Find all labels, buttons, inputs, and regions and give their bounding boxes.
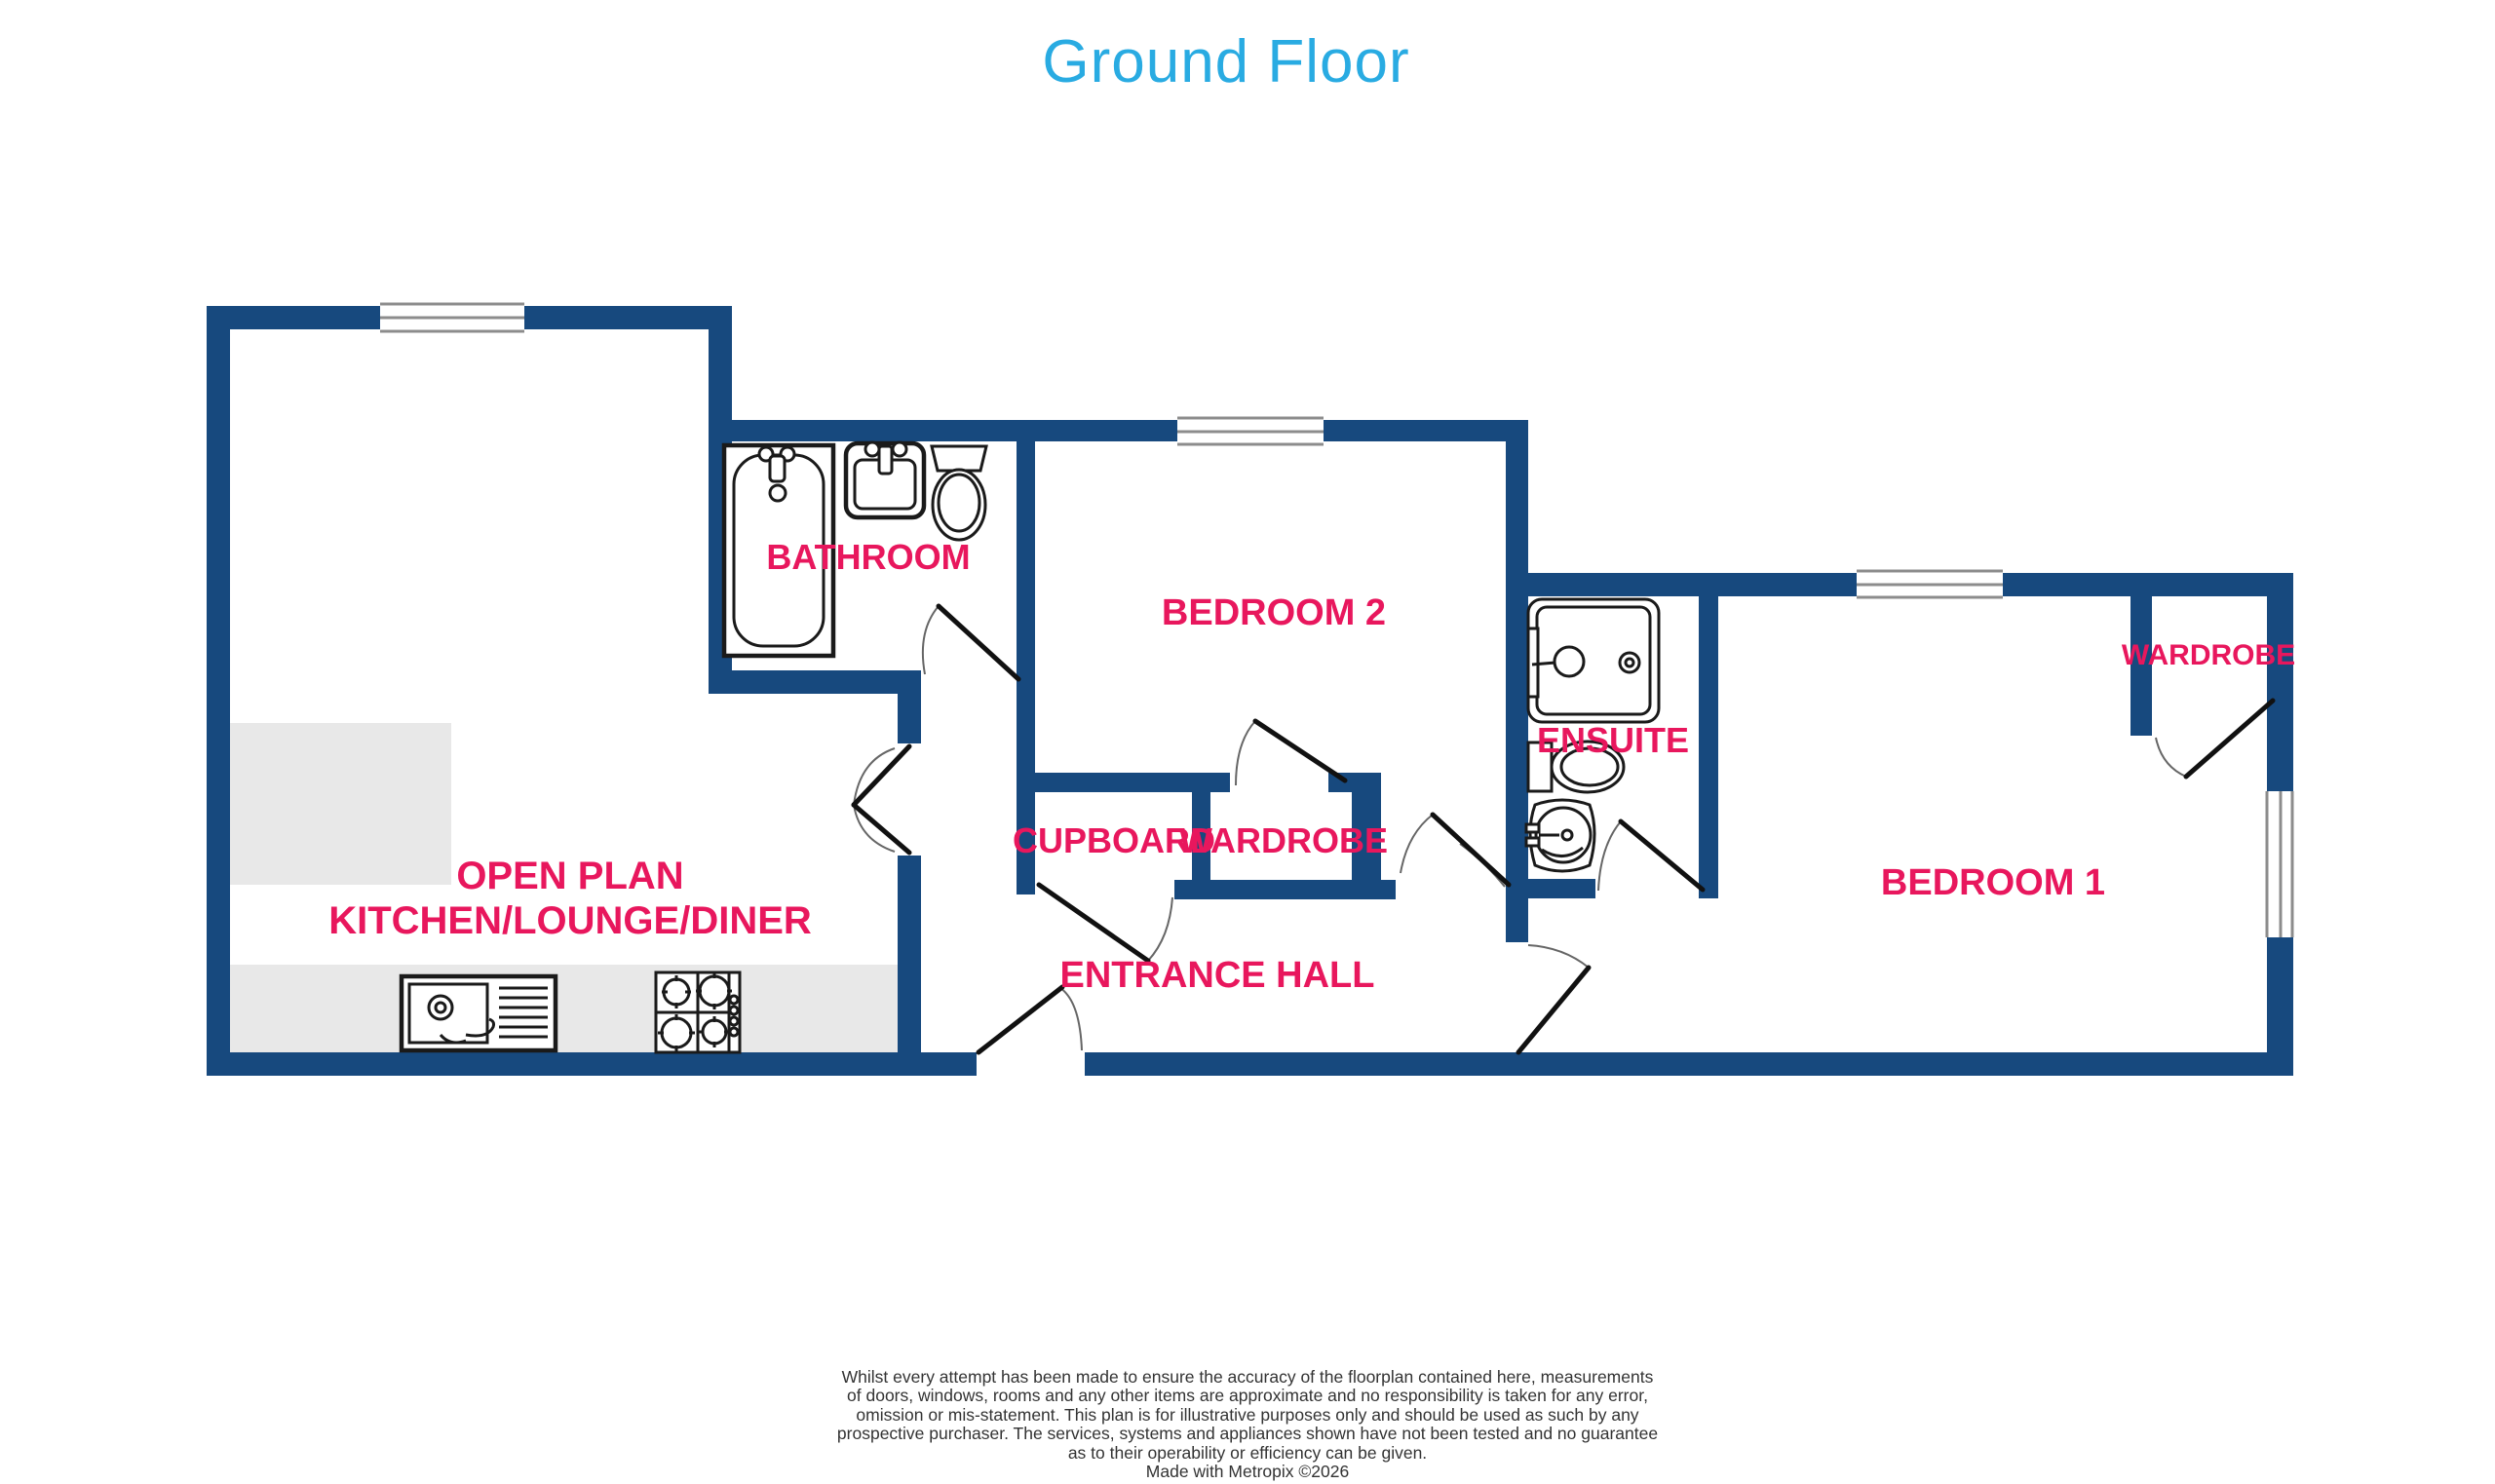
room-label-bathroom: BATHROOM <box>766 537 970 577</box>
shower <box>1528 599 1659 722</box>
disclaimer-line: as to their operability or efficiency ca… <box>0 1444 2495 1463</box>
floorplan: OPEN PLAN KITCHEN/LOUNGE/DINER BATHROOM … <box>0 0 2495 1484</box>
door-bathroom <box>923 606 1018 679</box>
room-label-bedroom2: BEDROOM 2 <box>1162 592 1386 633</box>
disclaimer-line: Whilst every attempt has been made to en… <box>0 1368 2495 1387</box>
door-bedroom1 <box>1518 945 1589 1052</box>
disclaimer-line: Made with Metropix ©2026 <box>0 1463 2495 1481</box>
disclaimer-line: omission or mis-statement. This plan is … <box>0 1406 2495 1425</box>
window-bedroom1-top <box>1857 569 2003 599</box>
ensuite-sink <box>1526 800 1594 871</box>
door-wardrobe-bedroom1 <box>2156 701 2273 777</box>
room-label-entrance-hall: ENTRANCE HALL <box>1060 955 1375 996</box>
room-label-wardrobe-bedroom1: WARDROBE <box>2122 639 2295 671</box>
door-kitchen-double <box>854 746 909 853</box>
door-cupboard <box>1039 885 1172 961</box>
hob <box>656 972 740 1052</box>
bathroom-sink <box>846 442 924 517</box>
door-entrance <box>979 987 1082 1052</box>
disclaimer-line: of doors, windows, rooms and any other i… <box>0 1387 2495 1405</box>
disclaimer-line: prospective purchaser. The services, sys… <box>0 1425 2495 1443</box>
room-label-bedroom1: BEDROOM 1 <box>1881 862 2105 903</box>
room-label-open-plan-line2: KITCHEN/LOUNGE/DINER <box>328 899 812 942</box>
window-bedroom2 <box>1177 416 1324 446</box>
disclaimer: Whilst every attempt has been made to en… <box>0 1368 2495 1481</box>
bathroom-toilet <box>932 446 986 540</box>
window-bedroom1-right <box>2264 791 2295 937</box>
door-bedroom2 <box>1401 815 1509 887</box>
door-ensuite <box>1598 821 1703 891</box>
room-labels: OPEN PLAN KITCHEN/LOUNGE/DINER BATHROOM … <box>328 537 2295 996</box>
room-label-wardrobe-middle: WARDROBE <box>1179 820 1388 860</box>
room-label-open-plan-line1: OPEN PLAN <box>456 855 683 897</box>
room-label-ensuite: ENSUITE <box>1537 720 1689 760</box>
window-kitchen <box>380 302 524 333</box>
kitchen-sink <box>402 976 556 1050</box>
